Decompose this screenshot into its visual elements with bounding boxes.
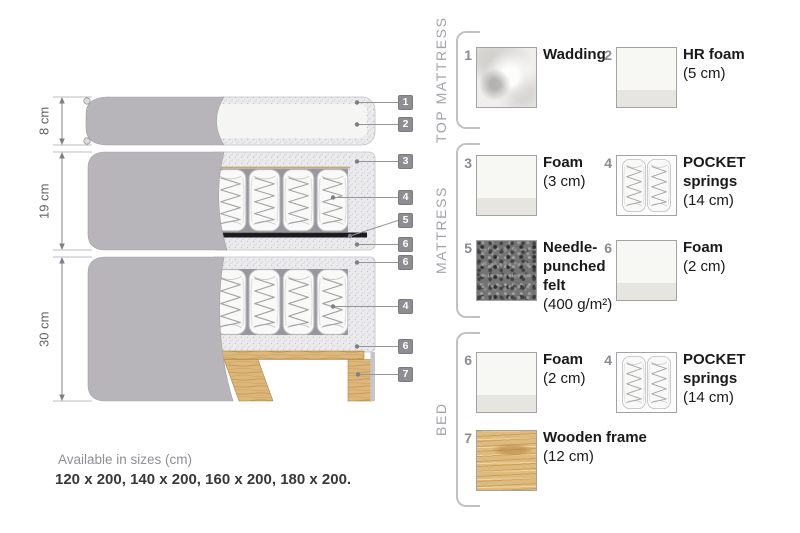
callout-badge-6c: 6 <box>398 339 413 354</box>
legend-item-number: 1 <box>458 47 472 63</box>
pocket-springs-swatch <box>616 155 677 216</box>
pocket-springs-art <box>618 354 675 411</box>
section-title-bed: BED <box>430 332 452 507</box>
legend-item-label: Foam (2 cm) <box>683 238 783 276</box>
bed-layer <box>88 257 375 401</box>
top-mattress-layer <box>84 97 375 145</box>
wooden-frame-swatch <box>476 430 537 491</box>
legend-item-label: HR foam (5 cm) <box>683 45 795 83</box>
callout-badge-3: 3 <box>398 154 413 169</box>
fabric-cover <box>88 152 227 250</box>
wadding-swatch <box>476 47 537 108</box>
fabric-cover <box>88 257 233 401</box>
legend-item-number: 4 <box>598 352 612 368</box>
dimension-arrows <box>59 97 65 401</box>
foam-swatch <box>476 155 537 216</box>
wood-rail <box>216 351 364 360</box>
callout-badge-6: 6 <box>398 237 413 252</box>
legend-item-label: POCKET springs (14 cm) <box>683 153 765 210</box>
callout-badge-6b: 6 <box>398 255 413 270</box>
pocket-springs-art <box>618 157 675 214</box>
bed-construction-infographic: 8 cm 19 cm 30 cm 1 2 3 4 5 6 6 4 6 7 TOP… <box>0 0 800 533</box>
callout-badge-5: 5 <box>398 213 413 228</box>
hr-foam-core <box>216 104 367 138</box>
legend-item-label: POCKET springs (14 cm) <box>683 350 765 407</box>
dimension-label-bed: 30 cm <box>33 307 55 351</box>
section-title-top-mattress: TOP MATTRESS <box>430 31 452 129</box>
section-title-mattress: MATTRESS <box>430 143 452 318</box>
legend-item-number: 5 <box>458 240 472 256</box>
dimension-label-mattress: 19 cm <box>33 179 55 223</box>
legend-item-number: 7 <box>458 430 472 446</box>
foam-swatch <box>616 240 677 301</box>
fabric-cover <box>86 97 224 145</box>
mattress-layer <box>88 152 375 250</box>
available-sizes-title: Available in sizes (cm) <box>58 452 192 467</box>
needle-punched-felt-swatch <box>476 240 537 301</box>
available-sizes-list: 120 x 200, 140 x 200, 160 x 200, 180 x 2… <box>55 471 351 488</box>
foam-swatch <box>476 352 537 413</box>
callout-badge-4: 4 <box>398 190 413 205</box>
hr-foam-swatch <box>616 47 677 108</box>
legend-item-label: Wooden frame (12 cm) <box>543 428 673 466</box>
callout-badge-7: 7 <box>398 367 413 382</box>
callout-badge-1: 1 <box>398 95 413 110</box>
dimension-label-top-mattress: 8 cm <box>33 99 55 143</box>
callout-badge-2: 2 <box>398 117 413 132</box>
legend-item-number: 6 <box>458 352 472 368</box>
legend-item-number: 2 <box>598 47 612 63</box>
felt-strip <box>212 233 367 238</box>
legend-item-number: 4 <box>598 155 612 171</box>
legend-item-number: 3 <box>458 155 472 171</box>
pocket-springs-swatch <box>616 352 677 413</box>
wood-leg-right <box>348 360 372 402</box>
legend-item-number: 6 <box>598 240 612 256</box>
callout-badge-4b: 4 <box>398 299 413 314</box>
